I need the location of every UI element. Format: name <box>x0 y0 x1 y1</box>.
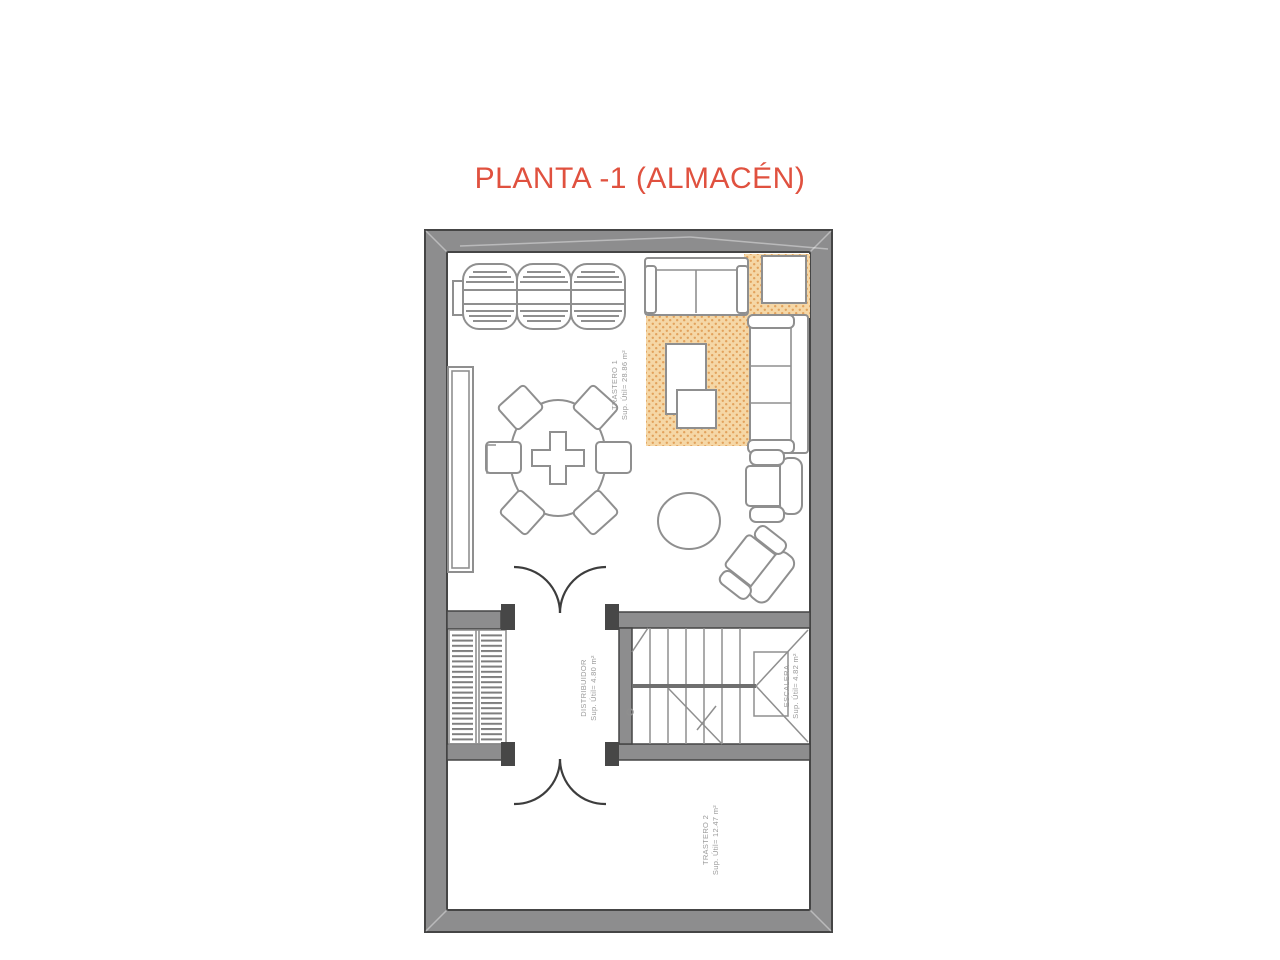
shelving-unit <box>449 630 506 744</box>
dining-chair <box>596 442 631 473</box>
room-label-distribuidor-name: DISTRIBUIDOR <box>579 659 588 717</box>
side-table <box>762 256 806 303</box>
armchair-lower <box>714 521 802 612</box>
room-label-escalera-area: Sup. Útil= 4.82 m² <box>791 653 800 719</box>
stair-direction-line <box>668 688 722 744</box>
room-label-escalera-name: ESCALERA <box>782 665 791 707</box>
barrel <box>571 264 625 329</box>
wall-mid-lower-left <box>447 744 502 760</box>
dining-chair <box>486 442 521 473</box>
floor-plan-page: PLANTA -1 (ALMACÉN) <box>0 0 1280 960</box>
wall-mid-upper-left <box>447 611 501 629</box>
barrel-rack <box>453 264 625 329</box>
sofa-top <box>645 258 748 315</box>
floor-plan-drawing: TRASTERO 1 Sup. Útil= 28.86 m² DISTRIBUI… <box>0 0 1280 960</box>
stair-break-mark <box>697 706 716 730</box>
armchair-upper <box>746 450 802 522</box>
double-door-upper <box>501 567 619 630</box>
room-label-trastero1-name: TRASTERO 1 <box>610 360 619 410</box>
room-label-distribuidor-area: Sup. Útil= 4.80 m² <box>589 655 598 721</box>
double-door-lower <box>501 742 619 804</box>
ottoman <box>658 493 720 549</box>
staircase <box>627 628 808 744</box>
sofa-right <box>748 315 808 453</box>
room-label-trastero2-name: TRASTERO 2 <box>701 815 710 865</box>
room-label-trastero2-area: Sup. Útil= 12.47 m² <box>711 805 720 875</box>
wall-stair-divider <box>619 628 632 744</box>
barrel <box>463 264 517 329</box>
barrel <box>517 264 571 329</box>
wall-mid-lower-right <box>617 744 810 760</box>
wall-mid-upper-right <box>617 612 810 628</box>
room-label-trastero1-area: Sup. Útil= 28.86 m² <box>620 350 629 420</box>
